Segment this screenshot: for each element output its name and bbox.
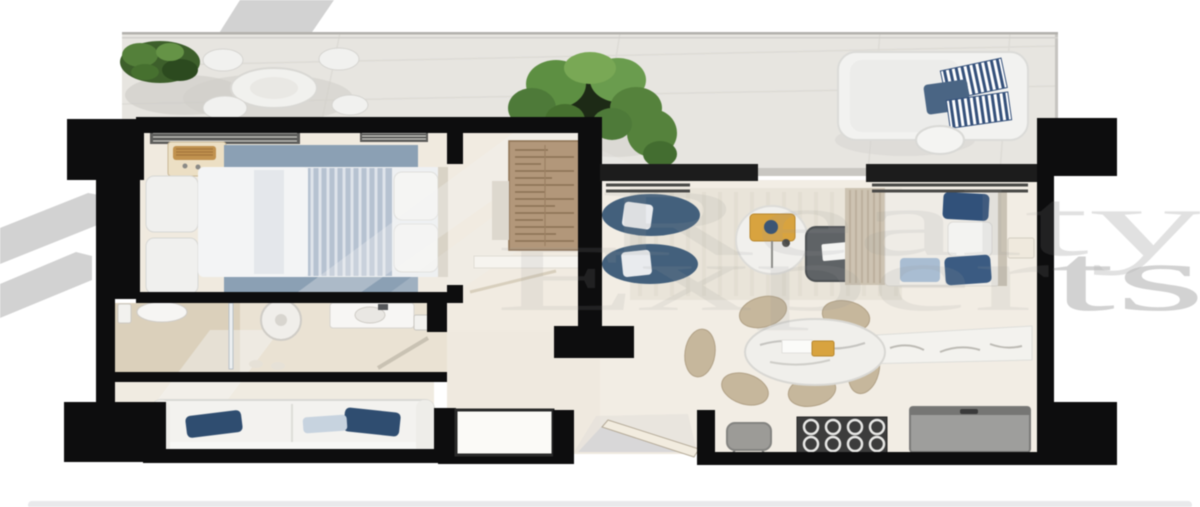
- svg-text:Experts: Experts: [495, 226, 1200, 331]
